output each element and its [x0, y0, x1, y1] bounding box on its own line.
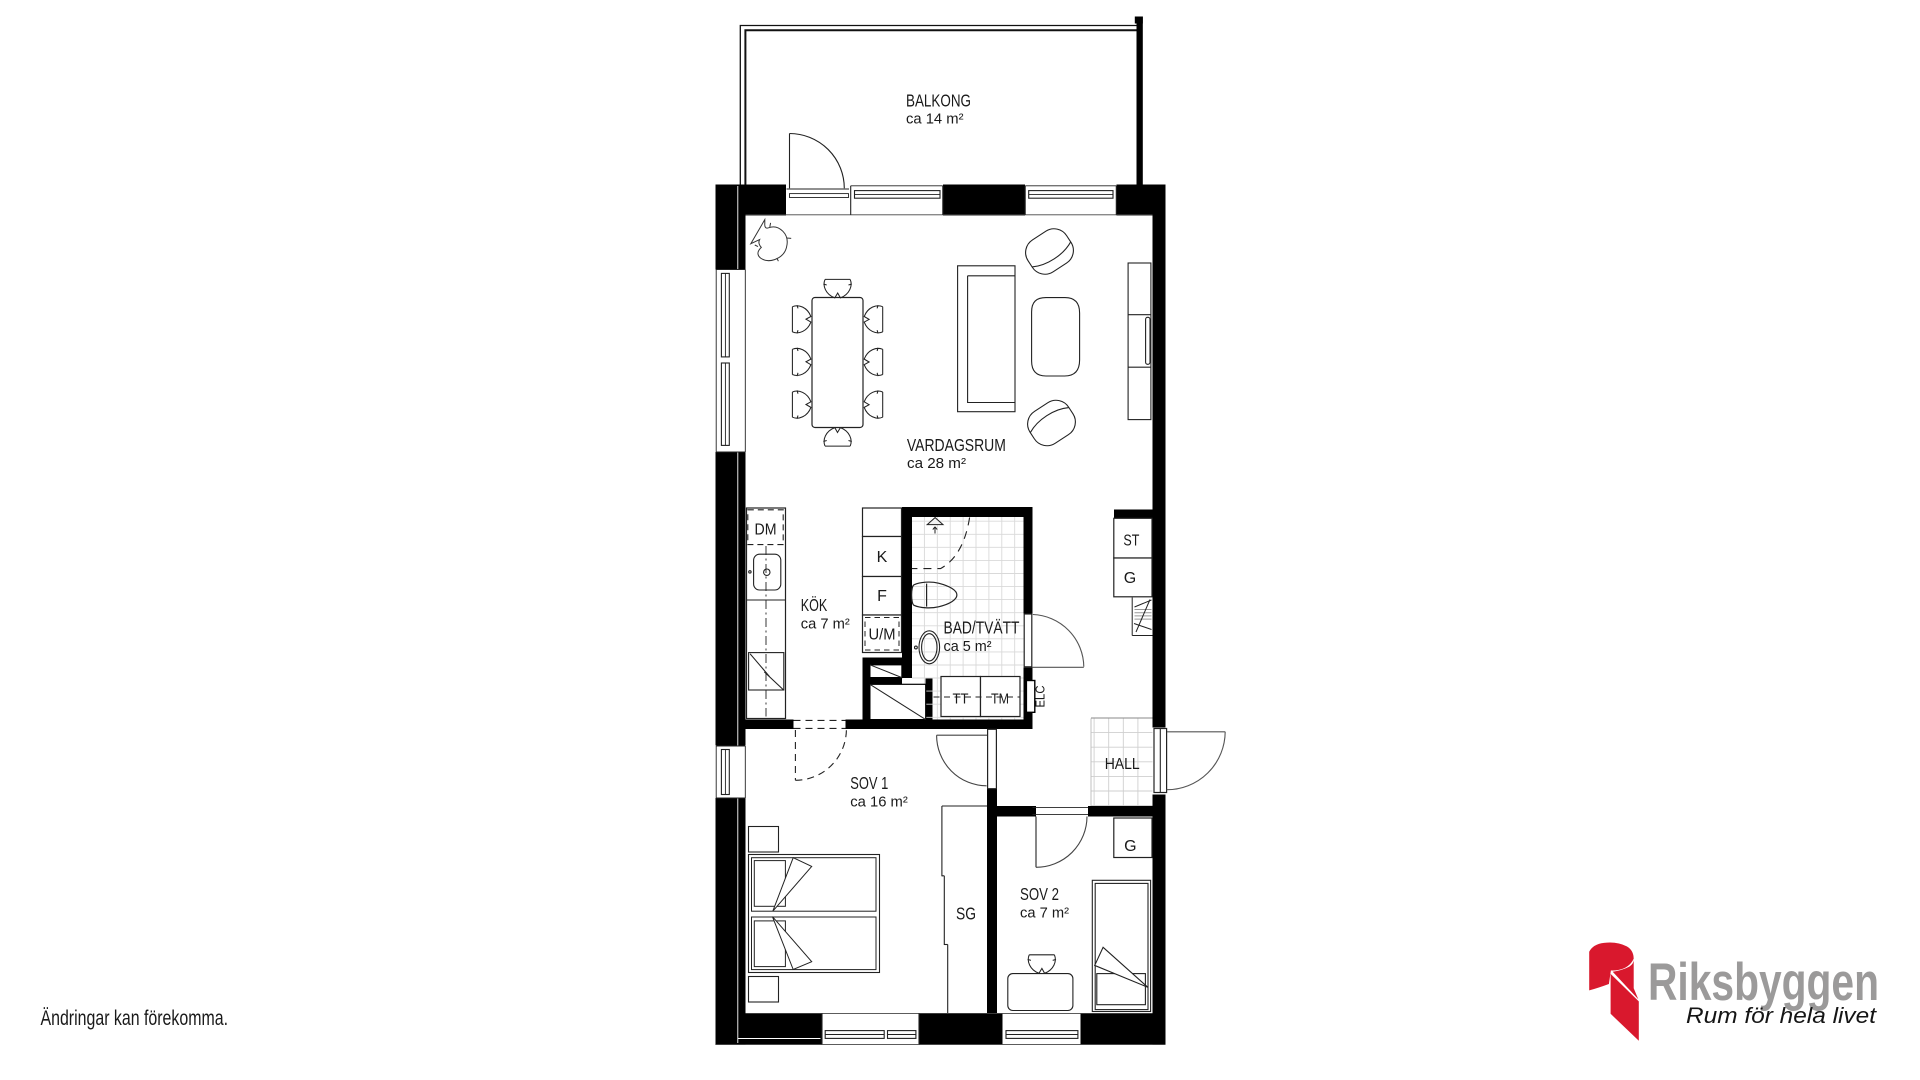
svg-text:SOV 2: SOV 2: [1020, 884, 1059, 904]
svg-text:ca 7 m²: ca 7 m²: [1020, 906, 1069, 922]
svg-text:VARDAGSRUM: VARDAGSRUM: [907, 435, 1006, 455]
svg-text:HALL: HALL: [1105, 756, 1140, 773]
svg-text:ST: ST: [1123, 533, 1139, 550]
svg-text:F: F: [877, 588, 887, 605]
svg-text:Rum för hela livet: Rum för hela livet: [1686, 1003, 1877, 1028]
svg-text:BAD/TVÄTT: BAD/TVÄTT: [944, 618, 1020, 638]
svg-text:TM: TM: [991, 692, 1009, 708]
svg-text:SOV 1: SOV 1: [850, 773, 888, 793]
svg-text:K: K: [877, 549, 888, 566]
svg-text:SG: SG: [956, 904, 976, 924]
svg-text:U/M: U/M: [869, 627, 896, 644]
svg-text:ca 7 m²: ca 7 m²: [801, 617, 850, 633]
svg-text:Ändringar kan förekomma.: Ändringar kan förekomma.: [41, 1007, 229, 1030]
svg-text:ca 14 m²: ca 14 m²: [906, 112, 964, 128]
svg-text:BALKONG: BALKONG: [906, 91, 971, 111]
svg-text:G: G: [1124, 838, 1136, 855]
svg-text:ELC: ELC: [1033, 686, 1048, 708]
svg-text:DM: DM: [755, 522, 777, 539]
svg-text:ca 16 m²: ca 16 m²: [850, 795, 908, 811]
svg-text:G: G: [1124, 570, 1136, 587]
svg-text:ca 28 m²: ca 28 m²: [907, 456, 966, 472]
svg-text:ca 5 m²: ca 5 m²: [944, 639, 992, 655]
svg-text:KÖK: KÖK: [801, 595, 828, 615]
svg-text:TT: TT: [953, 692, 969, 708]
